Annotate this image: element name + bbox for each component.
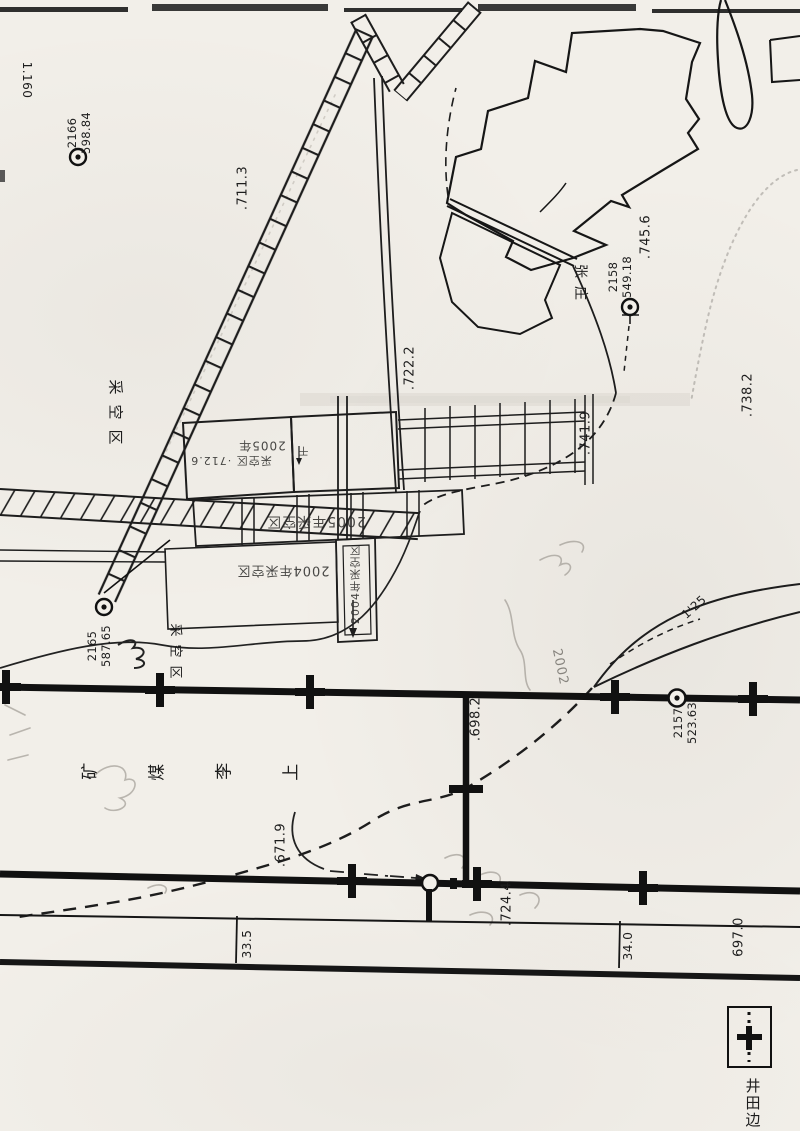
survey-point-id: 2166 xyxy=(66,112,80,154)
legend-symbol xyxy=(728,1007,771,1067)
grid-line-b xyxy=(0,864,800,921)
legend-boundary-label: 井田边 xyxy=(743,1078,764,1129)
frame-lines-bottom xyxy=(0,915,800,978)
spot-elevation: .741.9 xyxy=(579,411,594,455)
mine-name-char: 煤 xyxy=(143,763,168,781)
handwritten-note: 2005年采空区 xyxy=(266,512,366,532)
survey-point-label: 2166 598.84 xyxy=(66,112,94,154)
spot-elevation: .671.9 xyxy=(274,823,289,867)
shaft-circle-symbol xyxy=(422,875,438,891)
spot-elevation: .711.3 xyxy=(236,166,251,210)
spot-elevation: .738.2 xyxy=(741,373,756,417)
survey-point-label: 2157 523.63 xyxy=(672,702,700,744)
distance-label: 34.0 xyxy=(621,932,635,961)
survey-point-id: 2158 xyxy=(607,256,621,298)
spot-elevation: .698.2 xyxy=(469,697,484,741)
mine-name-char: 李 xyxy=(210,762,235,780)
handwritten-note: 采空区 ·712.6 xyxy=(190,453,271,469)
survey-point-elevation: 523.63 xyxy=(686,702,700,744)
survey-point-id: 2165 xyxy=(86,625,100,667)
spot-elevation: .745.6 xyxy=(639,215,654,259)
survey-point-id: 2157 xyxy=(672,702,686,744)
survey-point-elevation: 549.18 xyxy=(621,256,635,298)
handwritten-note: 2005年 xyxy=(238,438,286,455)
handwritten-note: 干 xyxy=(298,445,309,460)
survey-point-label: 2158 549.18 xyxy=(607,256,635,298)
survey-point-label: 2165 587.65 xyxy=(86,625,114,667)
spot-elevation: .724.4 xyxy=(500,882,515,926)
survey-point-elevation: 598.84 xyxy=(80,112,94,154)
spot-elevation: 697.0 xyxy=(732,917,747,957)
distance-label: 33.5 xyxy=(240,930,254,959)
mine-name-char: 矿 xyxy=(76,762,101,780)
handwritten-note: 2004年采空区 xyxy=(236,563,329,582)
roadway-ladders xyxy=(0,2,481,602)
handwritten-note: 2004年采空区 xyxy=(348,544,364,624)
corner-grid-ref: 1.160 xyxy=(20,62,34,99)
scanned-mine-map: 1.160 .711.3 .722.2 .745.6 .741.9 .738.2… xyxy=(0,0,800,1131)
map-linework xyxy=(0,0,800,1131)
goaf-area-label: 采空区 xyxy=(168,623,187,686)
ladder-2 xyxy=(394,2,481,101)
spot-elevation: .722.2 xyxy=(403,346,418,390)
village-name: 张庄 xyxy=(571,264,591,308)
mine-name-char: 上 xyxy=(277,763,302,781)
survey-point-elevation: 587.65 xyxy=(100,625,114,667)
goaf-area-label: 采空区 xyxy=(106,379,127,454)
